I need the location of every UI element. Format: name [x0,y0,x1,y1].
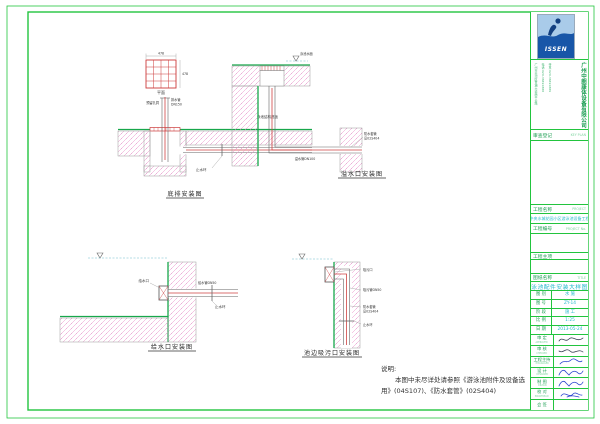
sign-row-proofread: 校 对PROOFREAD [531,389,588,400]
water-level-icon [293,56,299,61]
info-label: 日 期 [531,326,552,334]
company-row: 广州市天河区黄埔大道西平云路 电话:020-38491888 传真:020-38… [531,60,588,130]
review-label-en: KEY PLAN [571,133,586,137]
pool-floor [60,318,168,342]
inlet-detail: 止水环 给水管DN50 给水口 给水口安装图 [60,253,238,351]
water-level-icon [299,254,305,259]
contact-phone: 电话:020-38491888 [541,63,545,125]
note-line-1: 本图中未尽详处请参照《游泳池附件及设备选 [395,375,526,384]
contact-fax: 传真:020-38491889 [548,63,552,125]
water-level-icon [97,253,103,258]
info-label: 图 别 [531,291,552,299]
reserved-hole-label: 预留孔洞 [146,100,159,105]
info-row-stage: 阶 段 施 工 [531,309,588,318]
subitem-label-cn: 工程主项 [533,253,552,260]
sign-row-drawn: 制 图DRAWN [531,378,588,389]
sleeve-label-2: 见02S404 [364,137,379,141]
project-no-label-en: PROJECT No. [566,227,586,231]
drain-pipe-label: 排水管 [171,97,181,102]
subitem-row: 工程主项 [531,253,588,260]
sign-label-en: APPROVED [536,341,548,343]
overflow-detail: 泳池水面 防水套管 见02S404 溢水管DN100 溢水口安装图 [232,51,386,178]
review-label-cn: 审查登记 [533,132,552,139]
waterstop-label: 止水环 [196,167,207,172]
key-plan-box [531,141,588,205]
logo-swimmer-icon [538,15,574,41]
sign-row-approved: 审 定APPROVED [531,335,588,346]
info-row-scale: 比 例 1:25 [531,317,588,326]
overflow-pipe-label: 溢水管DN100 [295,156,316,161]
sign-row-manager: 工程主持P.MANAGER [531,357,588,368]
sign-row-countersign: 会 签 [531,400,588,410]
note-heading: 说明: [381,364,396,373]
info-value: 2013-05-24 [552,326,588,334]
project-label-cn: 工程名称 [533,206,552,213]
signature [554,368,588,378]
inlet-title: 给水口安装图 [151,343,193,351]
info-value: 1:25 [552,317,588,325]
drain-grate-plan: 478 478 平面 [146,52,188,96]
info-value: 施 工 [552,309,588,317]
sign-label-en: DRAWN [538,384,546,386]
sleeve-label-2: 见02S404 [363,310,378,314]
project-label-en: PROJECT [572,207,586,211]
sign-row-designed: 设 计DESIGNED [531,368,588,379]
sign-row-checked: 审 核CHECKED [531,346,588,357]
info-table: 图 别 水 施 图 号 ZY-14 阶 段 施 工 比 例 1:25 日 期 2… [531,291,588,335]
pool-wall [232,86,258,166]
info-value: ZY-14 [552,300,588,308]
info-row-category: 图 别 水 施 [531,291,588,300]
pool-wall [168,262,196,342]
project-no-row: 工程编号 PROJECT No. [531,224,588,234]
vacuum-title: 池边吸污口安装图 [304,349,360,357]
signature [554,378,588,388]
sign-label-en: DESIGNED [536,374,548,376]
vacuum-detail: 吸污口 吸污管DN50 防水套管 见02S404 止水环 池边吸污口安装图 [292,254,381,357]
cad-canvas: 478 478 平面 [0,0,600,424]
info-row-date: 日 期 2013-05-24 [531,326,588,334]
sign-label-en: CHECKED [537,352,548,354]
subitem-value-box [531,260,588,274]
inlet-pipe-label: 给水管DN50 [198,280,216,285]
overflow-title: 溢水口安装图 [341,170,383,178]
title-block: ISSEN 广州市天河区黄埔大道西平云路 电话:020-38491888 传真:… [530,12,588,410]
project-no-value-box [531,234,588,253]
logo-wordmark: ISSEN [538,41,574,58]
drawing-title-row: 泳池配件安装大样图 [531,282,588,291]
vacuum-pipe-label: 吸污管DN50 [363,287,381,292]
notes: 说明: 本图中未尽详处请参照《游泳池附件及设备选 用》(04S107)、《防水套… [381,364,526,395]
signature [554,346,588,356]
main-drain-title: 底排安装图 [167,190,202,198]
project-name: 中央水城花园小区游泳池设备工程 [531,214,588,223]
title-label-cn: 图纸名称 [533,274,552,281]
info-label: 图 号 [531,300,552,308]
signature [554,357,588,367]
grate-dim-top: 478 [158,52,164,56]
info-row-number: 图 号 ZY-14 [531,300,588,309]
project-name-row: 中央水城花园小区游泳池设备工程 [531,214,588,224]
company-logo: ISSEN [537,14,575,59]
project-no-label-cn: 工程编号 [533,225,552,232]
logo-row: ISSEN [531,12,588,60]
signature-table: 审 定APPROVED 审 核CHECKED 工程主持P.MANAGER 设 计… [531,335,588,410]
waterstop-label: 止水环 [363,322,373,327]
sign-label-en: P.MANAGER [535,363,548,365]
note-line-2: 用》(04S107)、《防水套管》(02S404) [381,386,496,395]
overflow-channel [260,66,284,86]
sump-bottom [144,166,186,176]
sleeve-label-1: 防水套管 [364,131,377,136]
vacuum-fitting-label: 吸污口 [363,267,373,272]
signature [554,389,588,399]
waterstop-label: 止水环 [215,304,226,309]
drawing-title: 泳池配件安装大样图 [531,282,588,290]
grate-plan-caption: 平面 [157,90,165,95]
contact-address: 广州市天河区黄埔大道西平云路 [534,63,538,125]
signature-empty [554,400,588,410]
signature [554,335,588,345]
title-label-row: 图纸名称 TITLE [531,274,588,282]
title-label-en: TITLE [577,276,586,280]
drawing-sheet: 478 478 平面 [0,0,600,424]
sign-label-en: PROOFREAD [535,395,549,397]
project-label-row: 工程名称 PROJECT [531,205,588,214]
grate-dim-side: 478 [182,72,188,76]
sign-label: 会 签 [537,403,547,408]
info-value: 水 施 [552,291,588,299]
inlet-nozzle-label: 给水口 [139,278,150,283]
company-name: 广州中朗康体设备有限公司 [578,62,587,128]
info-label: 比 例 [531,317,552,325]
review-row: 审查登记 KEY PLAN [531,130,588,141]
main-drain-section: 排水管 DN150 预留孔洞 止水环 泳池结构底板 [118,97,312,176]
sleeve-label-1: 防水套管 [363,304,376,309]
company-contacts: 广州市天河区黄埔大道西平云路 电话:020-38491888 传真:020-38… [534,63,552,125]
info-label: 阶 段 [531,309,552,317]
water-surface-label: 泳池水面 [300,51,313,56]
drain-pipe-size: DN150 [171,103,182,107]
